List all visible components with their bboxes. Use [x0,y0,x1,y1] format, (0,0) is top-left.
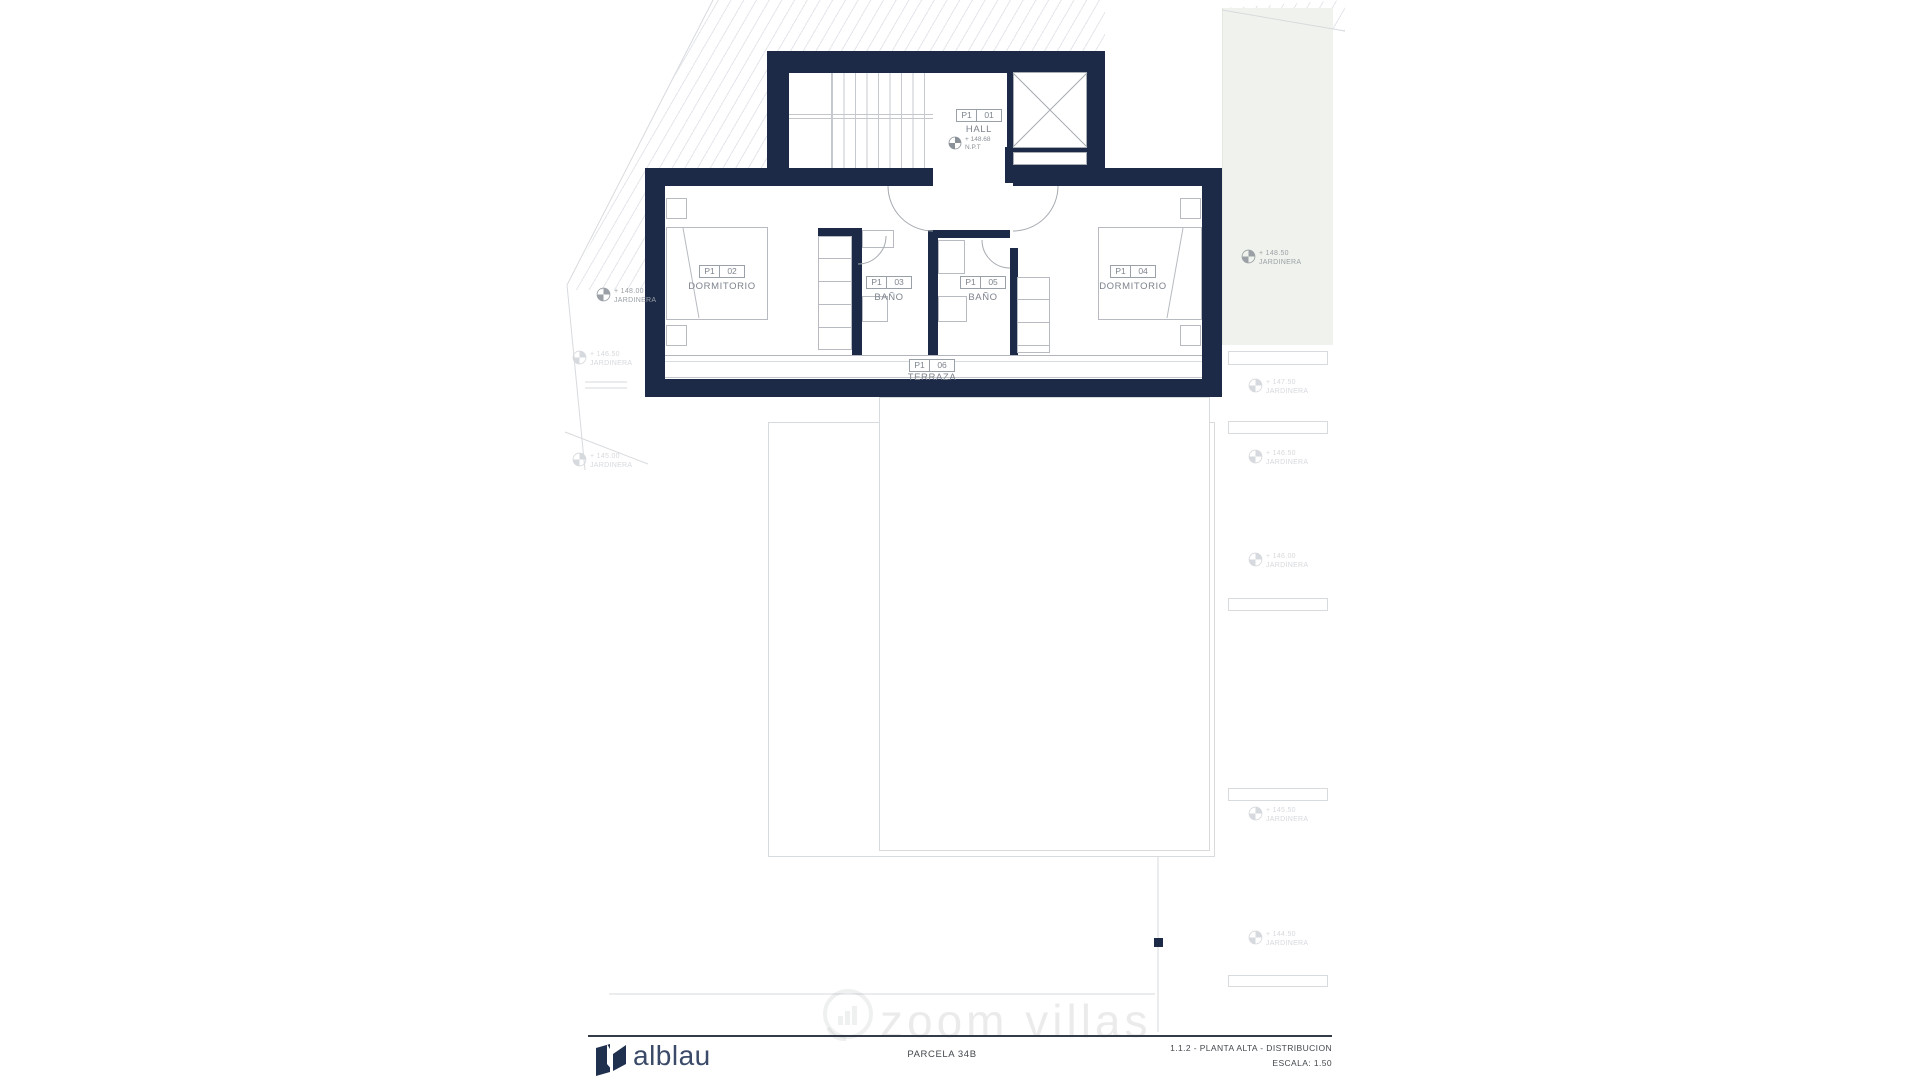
room-tag-bano3: P103 [866,276,912,289]
room-name-bano3: BAÑO [839,292,939,303]
nightstand [1180,325,1201,346]
garden-marker: + 145.00JARDINERA [572,452,632,470]
stair-landing-line [789,114,933,115]
room-tag-hall: P101 [956,109,1002,122]
room-name-bano5: BAÑO [933,292,1033,303]
room-name-terraza: TERRAZA [882,372,982,383]
planter-band [1228,598,1328,611]
benchmark-icon [1248,449,1263,464]
garden-marker: + 146.50JARDINERA [572,350,632,368]
benchmark-icon [572,350,587,365]
watermark-logo-icon [818,986,876,1048]
room-tag-dormitorio4: P104 [1110,265,1156,278]
room-tag-bano5: P105 [960,276,1006,289]
planter-band [1228,421,1328,434]
elevator-shaft [1013,72,1087,148]
sheet-scale: ESCALA: 1.50 [1272,1058,1332,1068]
stair-landing-line2 [789,118,933,119]
floor-plan-sheet: P101 HALL + 148.68 N.P.T P102 DORMITORIO… [0,0,1920,1080]
garden-marker: + 146.00JARDINERA [1248,552,1308,570]
footer-rule [588,1035,1332,1037]
garden-marker: + 147.50JARDINERA [1248,378,1308,396]
stair-treads [832,73,933,168]
room-name-dormitorio2: DORMITORIO [672,281,772,292]
garden-marker: + 146.50JARDINERA [1248,449,1308,467]
wall-top-block-left [767,51,789,183]
room-name-hall: HALL [929,124,1029,135]
wall-main-right [1202,168,1222,397]
terrace-glass-line [665,355,1202,356]
benchmark-icon [596,287,611,302]
nightstand [666,325,687,346]
benchmark-icon [572,452,587,467]
wall-main-top-left [645,168,933,186]
room-name-dormitorio4: DORMITORIO [1083,281,1183,292]
nightstand [666,198,687,219]
stair-divider [831,73,832,168]
elevator-niche [1013,152,1087,165]
brand-name: alblau [633,1040,711,1072]
garden-band-right [1222,8,1333,345]
shower-dividers [1018,277,1049,352]
benchmark-icon [1248,930,1263,945]
benchmark-icon [948,136,962,150]
site-pool-outline [879,397,1210,851]
room-tag-terraza: P106 [909,359,955,372]
wall-bath5-top [938,230,1010,238]
garden-marker: + 145.50JARDINERA [1248,806,1308,824]
wall-bedroom2-stub [818,228,862,236]
bath5-sink [938,240,965,274]
watermark-text: zoom villas [880,994,1152,1048]
wall-main-left [645,168,665,397]
garden-marker: + 144.50JARDINERA [1248,930,1308,948]
hall-level-datum: N.P.T [965,144,990,152]
brand-logo-icon [593,1040,629,1076]
room-tag-dormitorio2: P102 [699,265,745,278]
benchmark-icon [1248,806,1263,821]
planter-band [1228,351,1328,365]
bath3-sink [862,230,894,248]
hall-level-marker: + 148.68 N.P.T [948,136,990,152]
garden-marker: + 148.00JARDINERA [596,287,656,305]
wall-top-block-top [767,51,1105,73]
benchmark-icon [1241,249,1256,264]
nightstand [1180,198,1201,219]
hall-level-value: + 148.68 [965,136,990,144]
benchmark-icon [1248,378,1263,393]
hall-corridor-opening [933,168,1013,186]
garden-marker: + 148.50JARDINERA [1241,249,1301,267]
planter-band [1228,788,1328,801]
parcel-label: PARCELA 34B [907,1049,976,1060]
benchmark-icon [1248,552,1263,567]
sheet-title: 1.1.2 - PLANTA ALTA - DISTRIBUCION [1170,1043,1332,1053]
planter-band [1228,975,1328,987]
